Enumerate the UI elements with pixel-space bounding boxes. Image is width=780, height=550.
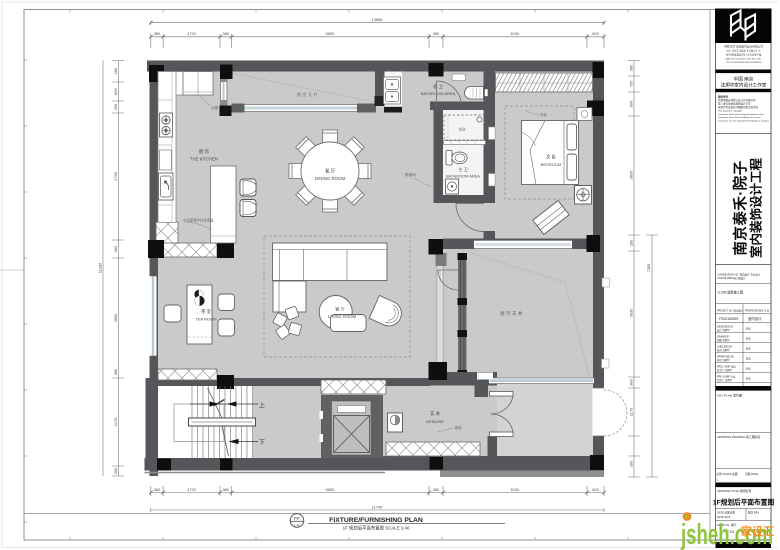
svg-text:校对 沈炯华: 校对 沈炯华 — [717, 348, 730, 352]
svg-text:1170: 1170 — [629, 407, 634, 416]
svg-text:BATHROOM AREA: BATHROOM AREA — [421, 91, 456, 96]
svg-text:380: 380 — [433, 487, 440, 492]
svg-text:下: 下 — [259, 440, 265, 447]
svg-text:11745: 11745 — [372, 505, 383, 510]
svg-text:750: 750 — [629, 80, 634, 87]
svg-text:中岛配置炉灶洗菜盆: 中岛配置炉灶洗菜盆 — [183, 218, 214, 223]
svg-text:TEA ROOM: TEA ROOM — [195, 317, 216, 322]
svg-text:600: 600 — [592, 31, 599, 36]
svg-text:签名: 签名 — [746, 367, 751, 371]
svg-text:设计 沈炯华: 设计 沈炯华 — [717, 328, 730, 332]
svg-text:负责人 沈炯华: 负责人 沈炯华 — [717, 378, 733, 382]
svg-text:Contractor shall verif the fig: Contractor shall verif the figured dimen… — [718, 113, 765, 116]
svg-text:鞋柜: 鞋柜 — [455, 425, 462, 430]
svg-text:KEY PLAN 索引图: KEY PLAN 索引图 — [718, 393, 742, 398]
svg-text:Contractor must check all dime: Contractor must check all dimension on s… — [718, 116, 761, 119]
svg-text:1725: 1725 — [187, 31, 196, 36]
svg-text:3635: 3635 — [629, 309, 634, 318]
svg-text:冰箱: 冰箱 — [211, 105, 219, 110]
svg-text:DRAWING TITLE 图纸名称: DRAWING TITLE 图纸名称 — [718, 489, 752, 493]
svg-text:FS2016 0929 施工图设计: FS2016 0929 施工图设计 — [718, 276, 747, 280]
svg-text:380: 380 — [154, 487, 161, 492]
svg-text:挑空天井: 挑空天井 — [500, 310, 524, 317]
svg-text:FS20160929: FS20160929 — [719, 317, 739, 321]
svg-text:390: 390 — [113, 103, 118, 110]
svg-text:FIXTURE/FURNISHING PLAN: FIXTURE/FURNISHING PLAN — [329, 517, 423, 524]
svg-text:主 卫: 主 卫 — [458, 166, 468, 172]
svg-text:未经许可违者必究翻版均追究其责任: 未经许可违者必究翻版均追究其责任 — [718, 105, 759, 109]
svg-text:6650: 6650 — [326, 31, 335, 36]
svg-text:第三者信息档案规划设计许可: 第三者信息档案规划设计许可 — [718, 102, 751, 106]
svg-text:WORKING DRAWING 施工图阶段: WORKING DRAWING 施工图阶段 — [718, 435, 761, 439]
svg-text:1725: 1725 — [187, 487, 196, 492]
svg-text:600: 600 — [629, 100, 634, 107]
svg-text:380: 380 — [113, 467, 118, 474]
svg-text:380: 380 — [629, 378, 634, 385]
svg-text:厨 房: 厨 房 — [199, 148, 210, 155]
svg-text:中国 南京 观唐装饰设计有限公司: 中国 南京 观唐装饰设计有限公司 — [724, 45, 763, 49]
svg-text:签名: 签名 — [746, 357, 751, 361]
svg-text:南京泰禾·院子: 南京泰禾·院子 — [732, 160, 750, 255]
svg-text:签名: 签名 — [746, 377, 751, 381]
svg-text:茶 室: 茶 室 — [201, 308, 212, 314]
svg-text:MAIL/TEL 025-8457 5 567 88L 70: MAIL/TEL 025-8457 5 567 88L 70-87 — [726, 58, 763, 61]
svg-text:600: 600 — [592, 487, 599, 492]
svg-text:GENUINE: GENUINE — [426, 419, 445, 424]
svg-text:2175: 2175 — [113, 418, 118, 427]
svg-text:6130: 6130 — [511, 487, 520, 492]
svg-text:日期 DATE: 日期 DATE — [745, 472, 758, 476]
svg-text:DINING ROOM: DINING ROOM — [315, 176, 346, 181]
svg-text:3650: 3650 — [629, 170, 634, 179]
svg-text:1F规划后平面布置图: 1F规划后平面布置图 — [713, 498, 775, 507]
svg-text:负责人 沈炯华: 负责人 沈炯华 — [717, 368, 733, 372]
svg-text:380: 380 — [629, 64, 634, 71]
svg-text:380: 380 — [433, 31, 440, 36]
svg-text:This drawing is copyright: This drawing is copyright — [718, 110, 742, 113]
svg-text:650: 650 — [113, 87, 118, 94]
svg-text:380: 380 — [113, 368, 118, 375]
svg-text:1795: 1795 — [113, 172, 118, 181]
svg-text:玄 关: 玄 关 — [430, 410, 441, 417]
svg-text:13865: 13865 — [372, 17, 383, 22]
svg-text:签名: 签名 — [746, 327, 751, 331]
svg-text:客 卫: 客 卫 — [433, 83, 443, 90]
svg-text:家设汇: 家设汇 — [741, 524, 775, 538]
svg-text:制图 沈炯华: 制图 沈炯华 — [717, 338, 730, 342]
svg-text:BATHROOM AREA: BATHROOM AREA — [446, 174, 480, 179]
svg-text:6130: 6130 — [511, 31, 520, 36]
svg-text:版权所有: 版权所有 — [718, 95, 729, 99]
svg-text:淋浴: 淋浴 — [458, 127, 466, 132]
svg-text:COMMISSION NO. 项目编号 专业设计: COMMISSION NO. 项目编号 专业设计 — [718, 273, 761, 277]
svg-text:3800: 3800 — [113, 313, 118, 322]
svg-text:280: 280 — [629, 239, 634, 246]
svg-text:380: 380 — [222, 487, 229, 492]
svg-text:285: 285 — [629, 461, 634, 468]
svg-text:室内装饰设计工程: 室内装饰设计工程 — [749, 158, 764, 259]
svg-text:6650: 6650 — [326, 487, 335, 492]
svg-text:客 厅: 客 厅 — [335, 306, 345, 313]
svg-text:DATE 出图日期: DATE 出图日期 — [717, 511, 735, 515]
svg-text:签名: 签名 — [746, 347, 751, 351]
svg-text:PROFESSIONAL 专业: PROFESSIONAL 专业 — [745, 309, 770, 313]
svg-text:版次 REV: 版次 REV — [748, 511, 760, 515]
svg-text:室内设计: 室内设计 — [748, 316, 762, 321]
svg-text:7285: 7285 — [646, 264, 651, 273]
svg-text:餐 厅: 餐 厅 — [325, 168, 336, 175]
svg-text:挑空天井: 挑空天井 — [297, 91, 319, 97]
svg-text:沈炯华室内设计工作室: 沈炯华室内设计工作室 — [721, 82, 767, 89]
svg-text:FF: FF — [294, 516, 300, 521]
svg-text:380: 380 — [113, 67, 118, 74]
svg-text:LIVING ROOM: LIVING ROOM — [328, 314, 356, 319]
svg-text:380: 380 — [154, 31, 161, 36]
svg-text:BEDROOM: BEDROOM — [541, 162, 562, 167]
svg-text:Contractor must be reported im: Contractor must be reported immediately … — [718, 119, 769, 122]
svg-text:THE KITCHEN: THE KITCHEN — [190, 157, 218, 162]
svg-text:衣柜: 衣柜 — [540, 112, 547, 117]
svg-text:签名: 签名 — [746, 337, 751, 341]
svg-text:审定 沈炯华: 审定 沈炯华 — [717, 358, 730, 362]
svg-text:1F 规划后平面布置图 SCALE 1:40: 1F 规划后平面布置图 SCALE 1:40 — [343, 525, 410, 532]
svg-text:上: 上 — [259, 402, 265, 410]
svg-text:鞋帽间: 鞋帽间 — [405, 172, 416, 177]
svg-text:380: 380 — [113, 245, 118, 252]
svg-text:复制本图必须经过设计方书面许可: 复制本图必须经过设计方书面许可 — [718, 98, 756, 102]
svg-text:G-309 建筑施工图: G-309 建筑施工图 — [718, 290, 744, 295]
svg-text:次 卧: 次 卧 — [546, 154, 557, 161]
svg-text:中国 南京: 中国 南京 — [734, 76, 754, 83]
svg-text:TEL 025-85624586 FAX 025584586: TEL 025-85624586 FAX 025584586 — [726, 61, 762, 64]
svg-text:1:40: 1:40 — [294, 524, 301, 528]
svg-text:380: 380 — [222, 31, 229, 36]
svg-text:PROJECT No. 项目编号: PROJECT No. 项目编号 — [717, 309, 743, 313]
svg-text:比例 SCALE 如图: 比例 SCALE 如图 — [717, 472, 738, 476]
svg-text:11280: 11280 — [98, 262, 103, 273]
